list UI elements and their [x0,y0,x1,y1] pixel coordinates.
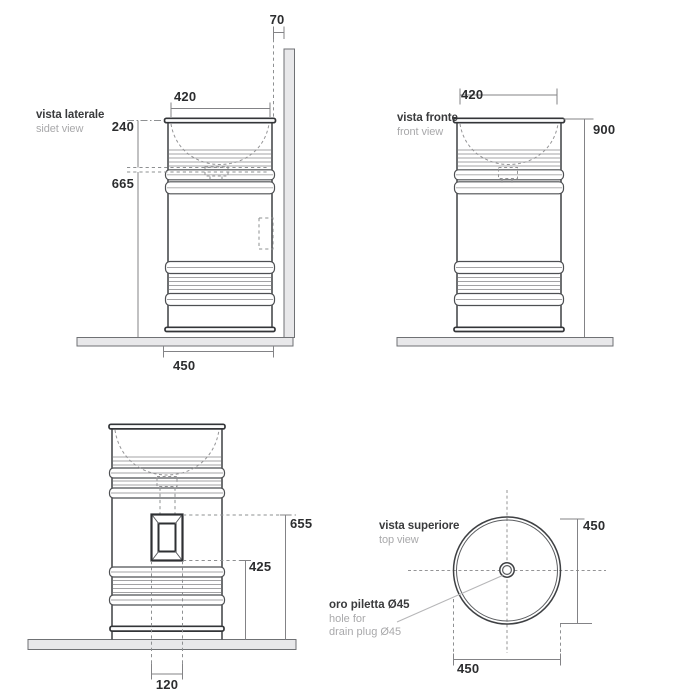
front-view-label: vista fronte front view [397,113,458,138]
dim-450-diameter-bottom: 450 [457,662,479,675]
dim-240-basin-depth: 240 [98,120,134,133]
side-view-label: vista laterale sidet view [36,110,104,135]
side-view [77,27,295,358]
front-view-subtitle: front view [397,127,458,138]
top-view-subtitle: top view [379,535,459,546]
top-view-label: vista superiore top view [379,521,459,546]
side-view-subtitle: sidet view [36,124,104,135]
front-floor-slab [397,338,613,347]
drain-hole-outer [500,563,514,577]
wall-panel [284,49,295,338]
side-wall-outlet-mark [259,218,273,249]
side-view-title: vista laterale [36,110,104,122]
side-floor-slab [77,338,293,347]
dim-450-diameter-right: 450 [583,519,605,532]
dim-665-under-basin: 665 [98,177,134,190]
side-view-barrel [165,118,276,331]
dim-900-height: 900 [593,123,615,136]
drawing-linework [0,0,700,700]
back-access-hole [152,515,183,561]
drain-leader-line [397,576,503,623]
dim-70-wall-gap: 70 [260,13,294,26]
top-view-dimension-lines [454,519,593,666]
dim-425-hole-bottom: 425 [249,560,271,573]
back-view-barrel [109,424,225,639]
front-view-barrel [454,118,565,331]
drain-plug-note: oro piletta Ø45 hole for drain plug Ø45 [329,600,410,638]
back-floor-slab [28,640,296,650]
dim-450-base-width: 450 [173,359,195,372]
drain-note-line2: hole for [329,614,410,625]
dim-655-hole-top: 655 [290,517,312,530]
dim-420-top-width-side: 420 [174,90,196,103]
dim-120-hole-width: 120 [149,678,185,691]
top-view-title: vista superiore [379,521,459,533]
top-view [397,490,606,666]
technical-drawing-sheet: 70 vista laterale sidet view 420 240 665… [0,0,700,700]
back-view [28,424,296,679]
dim-420-top-width-front: 420 [461,88,483,101]
drain-note-line3: drain plug Ø45 [329,627,410,638]
front-view-title: vista fronte [397,113,458,125]
drain-note-title: oro piletta Ø45 [329,600,410,612]
